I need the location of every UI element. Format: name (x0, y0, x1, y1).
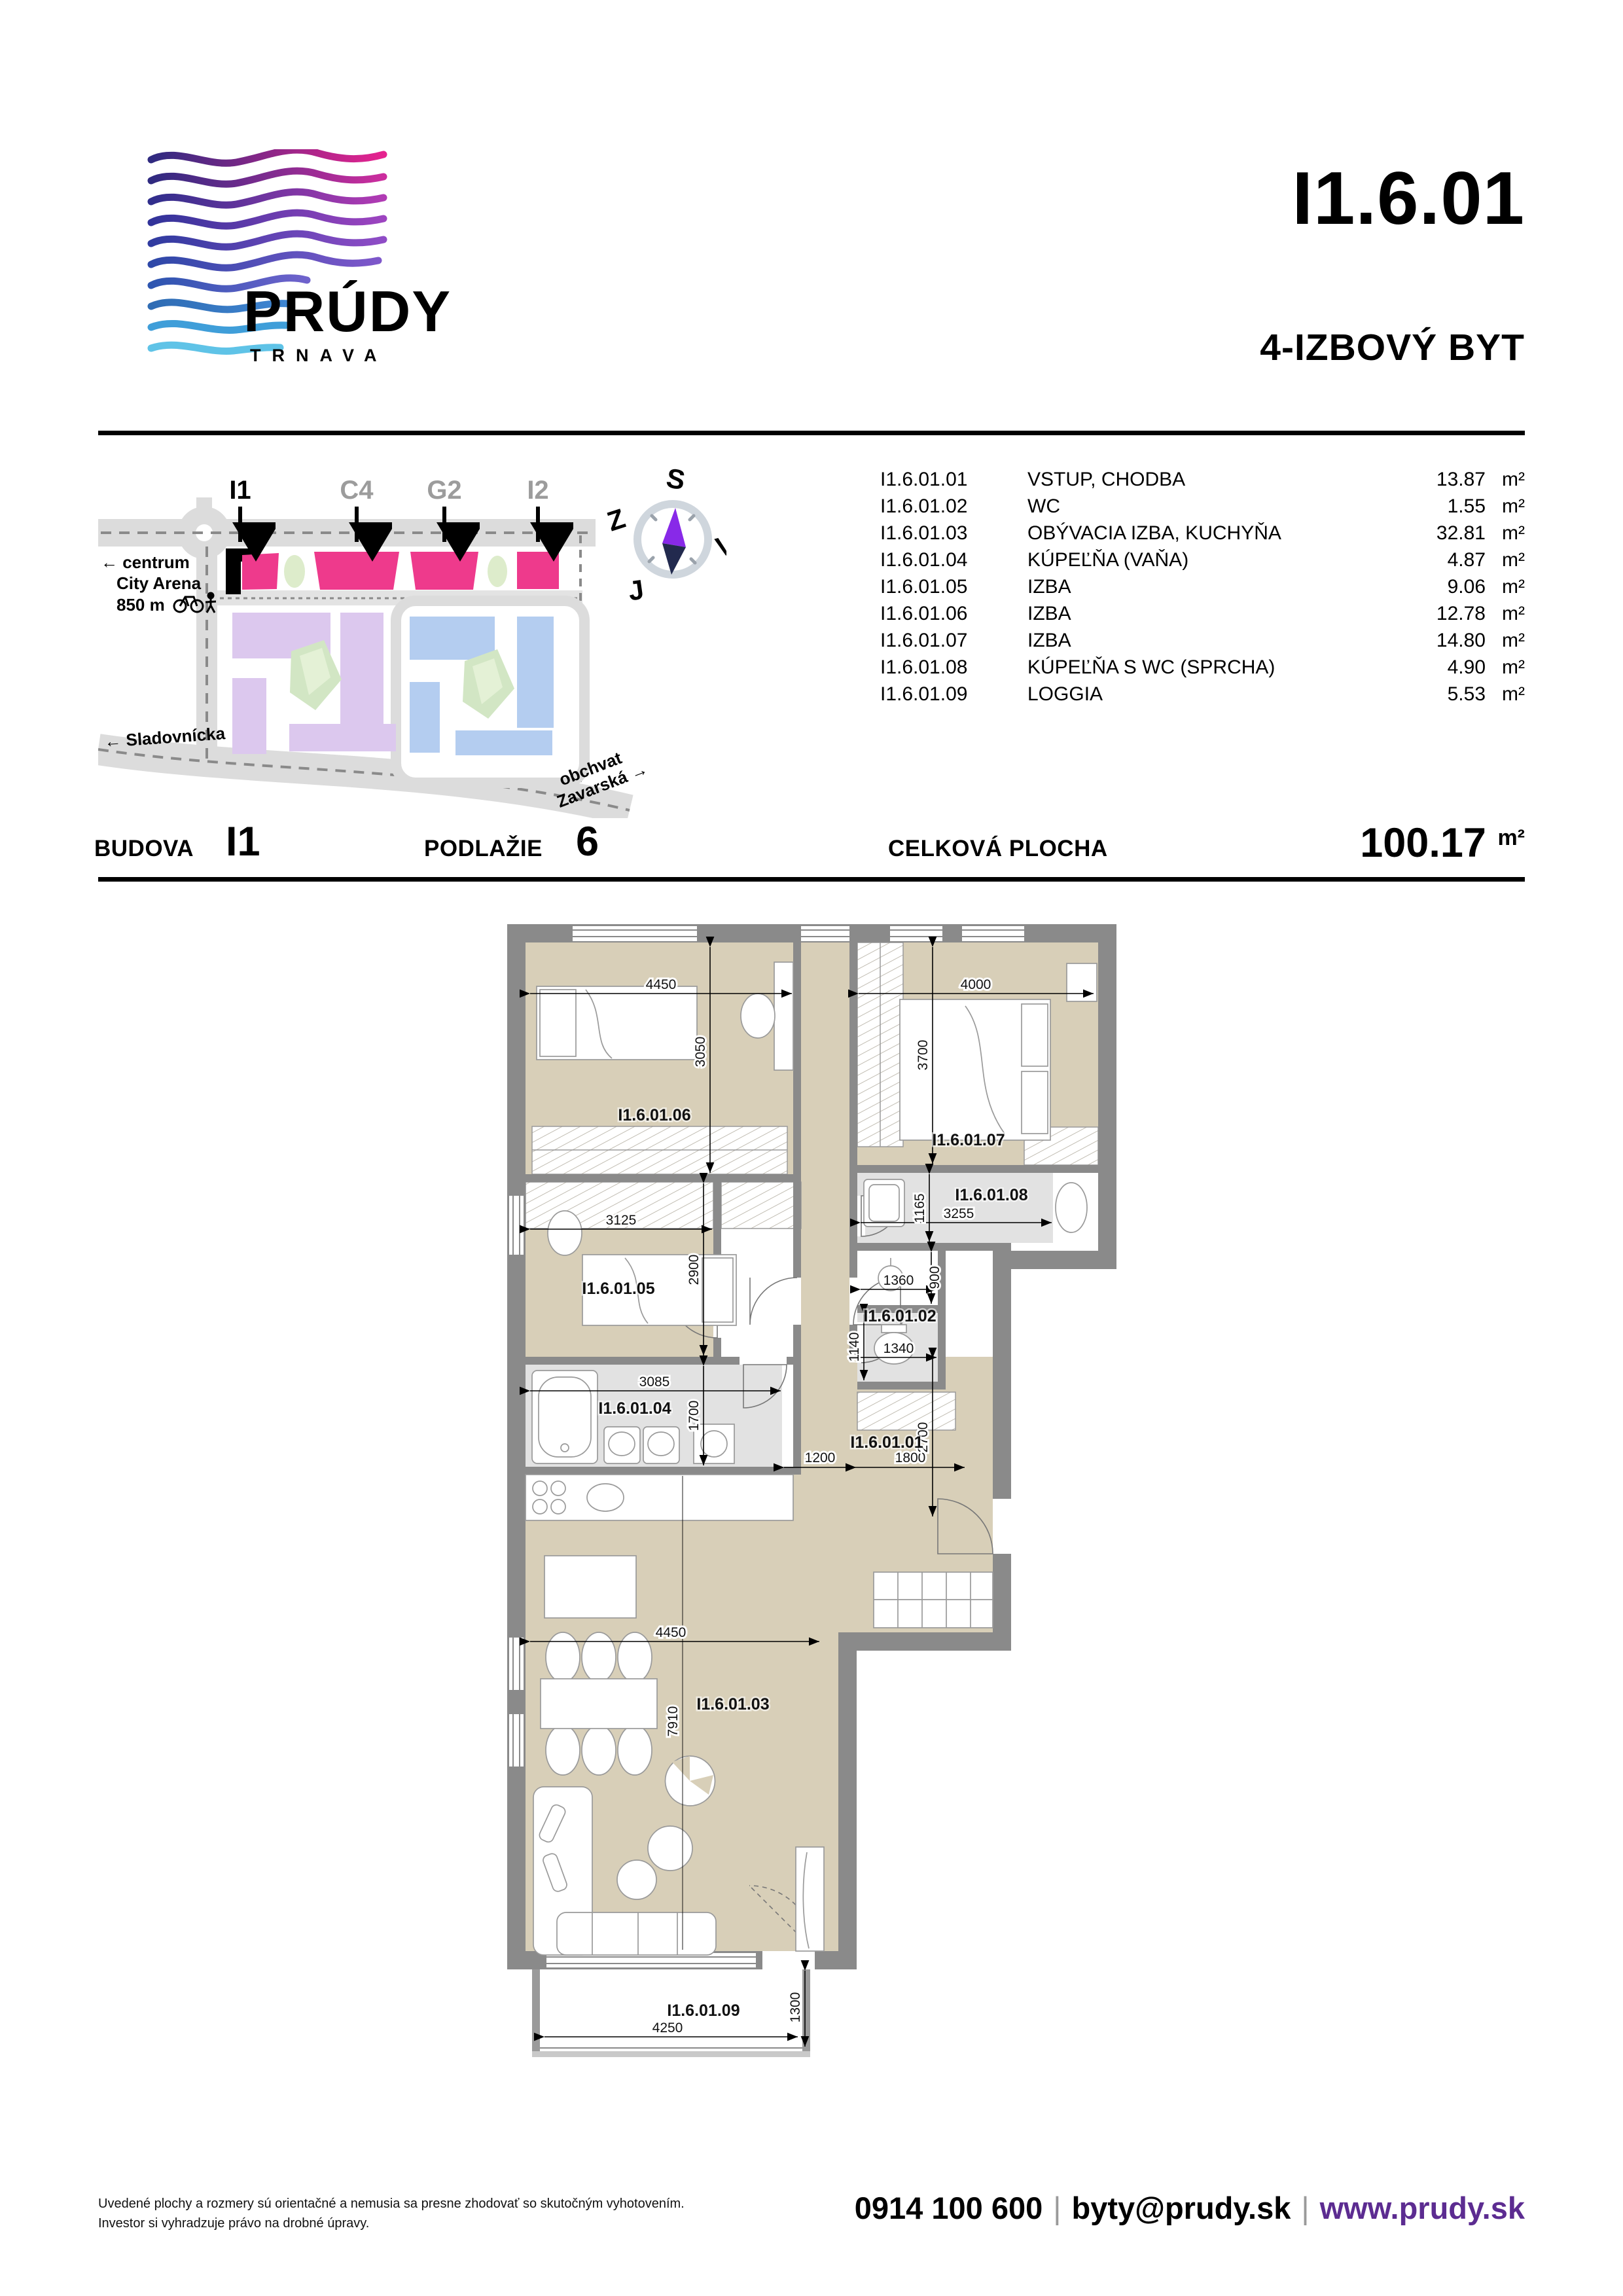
svg-text:4450: 4450 (646, 977, 677, 992)
room-code: I1.6.01.03 (880, 522, 1027, 545)
table-row: I1.6.01.01VSTUP, CHODBA13.87m² (880, 469, 1525, 495)
shoe-cabinet (874, 1572, 993, 1628)
compass-south: J (626, 574, 646, 607)
compass-icon: S Z V J (603, 462, 726, 606)
label-room-09: I1.6.01.09 (667, 2001, 740, 2020)
disclaimer-line-1: Uvedené plochy a rozmery sú orientačné a… (98, 2194, 685, 2214)
room-area: 4.90 (1400, 656, 1486, 679)
map-buildings-row (226, 548, 559, 594)
page-title-unit-id: I1.6.01 (1292, 156, 1525, 242)
kitchen-island (544, 1556, 636, 1618)
summary-floor-value: 6 (576, 818, 599, 865)
summary-building-label: BUDOVA (94, 836, 194, 862)
dining-table (541, 1679, 657, 1729)
room-area-unit: m² (1486, 469, 1525, 491)
summary-building-value: I1 (226, 818, 260, 865)
table-row: I1.6.01.09LOGGIA5.53m² (880, 683, 1525, 710)
svg-text:3125: 3125 (606, 1213, 637, 1228)
room-area-unit: m² (1486, 522, 1525, 545)
room-area: 14.80 (1400, 630, 1486, 652)
label-room-02: I1.6.01.02 (863, 1307, 936, 1325)
table-row: I1.6.01.08KÚPEĽŇA S WC (SPRCHA)4.90m² (880, 656, 1525, 683)
table-row: I1.6.01.06IZBA12.78m² (880, 603, 1525, 630)
room-code: I1.6.01.08 (880, 656, 1027, 679)
room-code: I1.6.01.02 (880, 495, 1027, 518)
label-room-05: I1.6.01.05 (582, 1280, 654, 1298)
room-code: I1.6.01.06 (880, 603, 1027, 625)
room-code: I1.6.01.07 (880, 630, 1027, 652)
coffee-table (648, 1826, 692, 1871)
header-divider (98, 431, 1525, 435)
room-name: IZBA (1027, 576, 1400, 598)
brand-city: TRNAVA (250, 346, 388, 366)
map-note-cityarena: City Arena (116, 573, 202, 593)
map-purple-block (232, 613, 396, 754)
kitchen-counter (526, 1475, 793, 1520)
room-area-unit: m² (1486, 656, 1525, 679)
page-subtitle-unit-type: 4-IZBOVÝ BYT (1260, 326, 1525, 369)
svg-text:1700: 1700 (687, 1401, 702, 1431)
room-code: I1.6.01.01 (880, 469, 1027, 491)
room-area-unit: m² (1486, 549, 1525, 571)
email-link[interactable]: byty@prudy.sk (1072, 2191, 1291, 2225)
total-area-number: 100.17 (1360, 820, 1486, 866)
map-label-c4: C4 (340, 476, 374, 505)
map-label-i2: I2 (527, 476, 548, 505)
svg-text:1165: 1165 (912, 1193, 927, 1223)
summary-total-label: CELKOVÁ PLOCHA (888, 836, 1108, 862)
table-row: I1.6.01.04KÚPEĽŇA (VAŇA)4.87m² (880, 549, 1525, 576)
room-area: 9.06 (1400, 576, 1486, 598)
map-label-g2: G2 (427, 476, 461, 505)
summary-floor-label: PODLAŽIE (424, 836, 543, 862)
svg-text:900: 900 (927, 1266, 942, 1289)
phone-link[interactable]: 0914 100 600 (855, 2191, 1043, 2225)
svg-text:1340: 1340 (883, 1341, 914, 1356)
brand-name: PRÚDY (243, 278, 452, 345)
room-code: I1.6.01.05 (880, 576, 1027, 598)
room-area: 32.81 (1400, 522, 1486, 545)
table-row: I1.6.01.07IZBA14.80m² (880, 630, 1525, 656)
svg-text:3085: 3085 (639, 1374, 670, 1390)
footer-disclaimer: Uvedené plochy a rozmery sú orientačné a… (98, 2194, 685, 2233)
compass-west: Z (603, 503, 629, 537)
room-name: LOGGIA (1027, 683, 1400, 706)
room-area-unit: m² (1486, 630, 1525, 652)
room-name: KÚPEĽŇA S WC (SPRCHA) (1027, 656, 1400, 679)
label-room-06: I1.6.01.06 (618, 1106, 690, 1124)
label-room-01: I1.6.01.01 (850, 1433, 923, 1452)
svg-text:4000: 4000 (961, 977, 991, 992)
svg-text:1300: 1300 (788, 1992, 803, 2023)
room-name: VSTUP, CHODBA (1027, 469, 1400, 491)
svg-text:4250: 4250 (652, 2020, 683, 2036)
label-room-03: I1.6.01.03 (696, 1695, 769, 1713)
compass-east: V (713, 529, 726, 564)
room-area-table: I1.6.01.01VSTUP, CHODBA13.87m² I1.6.01.0… (880, 469, 1525, 710)
room-code: I1.6.01.09 (880, 683, 1027, 706)
room-area-unit: m² (1486, 603, 1525, 625)
label-room-07: I1.6.01.07 (932, 1131, 1005, 1149)
summary-divider (98, 877, 1525, 882)
disclaimer-line-2: Investor si vyhradzuje právo na drobné ú… (98, 2214, 685, 2233)
svg-text:1140: 1140 (847, 1332, 862, 1361)
total-area-unit: m² (1497, 825, 1525, 850)
separator: | (1043, 2191, 1071, 2225)
footer-contact: 0914 100 600|byty@prudy.sk|www.prudy.sk (855, 2190, 1525, 2226)
map-blue-block (410, 617, 554, 755)
svg-text:1200: 1200 (805, 1450, 836, 1465)
site-map: I1 C4 G2 I2 ← centrum City Arena 850 m ←… (98, 452, 726, 818)
floor-plan: 4450 3050 4000 3700 3125 2900 3085 1700 … (507, 924, 1120, 2076)
map-label-i1: I1 (229, 476, 251, 505)
svg-text:1360: 1360 (883, 1273, 914, 1288)
svg-text:3255: 3255 (944, 1206, 974, 1221)
room-name: IZBA (1027, 603, 1400, 625)
room-name: IZBA (1027, 630, 1400, 652)
room-name: WC (1027, 495, 1400, 518)
table-row: I1.6.01.05IZBA9.06m² (880, 576, 1525, 603)
floorplan-sheet: PRÚDY TRNAVA I1.6.01 4-IZBOVÝ BYT (0, 0, 1623, 2296)
svg-text:7910: 7910 (666, 1706, 681, 1737)
svg-text:4450: 4450 (656, 1625, 687, 1640)
svg-text:3050: 3050 (693, 1037, 708, 1067)
website-link[interactable]: www.prudy.sk (1320, 2191, 1525, 2225)
room-area: 12.78 (1400, 603, 1486, 625)
label-room-08: I1.6.01.08 (955, 1186, 1027, 1204)
room-name: KÚPEĽŇA (VAŇA) (1027, 549, 1400, 571)
room-area-unit: m² (1486, 683, 1525, 706)
svg-text:2900: 2900 (687, 1255, 702, 1285)
map-note-distance: 850 m (116, 595, 165, 615)
room-code: I1.6.01.04 (880, 549, 1027, 571)
room-area: 4.87 (1400, 549, 1486, 571)
map-note-centrum: ← centrum (101, 552, 190, 572)
compass-north: S (664, 462, 688, 495)
table-row: I1.6.01.03OBÝVACIA IZBA, KUCHYŇA32.81m² (880, 522, 1525, 549)
room-area: 5.53 (1400, 683, 1486, 706)
room-area-unit: m² (1486, 576, 1525, 598)
svg-text:3700: 3700 (916, 1040, 931, 1071)
separator: | (1291, 2191, 1319, 2225)
room-name: OBÝVACIA IZBA, KUCHYŇA (1027, 522, 1400, 545)
label-room-04: I1.6.01.04 (598, 1399, 671, 1418)
room-area: 13.87 (1400, 469, 1486, 491)
table-row: I1.6.01.02WC1.55m² (880, 495, 1525, 522)
summary-total-value: 100.17 m² (1360, 819, 1525, 867)
room-area: 1.55 (1400, 495, 1486, 518)
room-area-unit: m² (1486, 495, 1525, 518)
